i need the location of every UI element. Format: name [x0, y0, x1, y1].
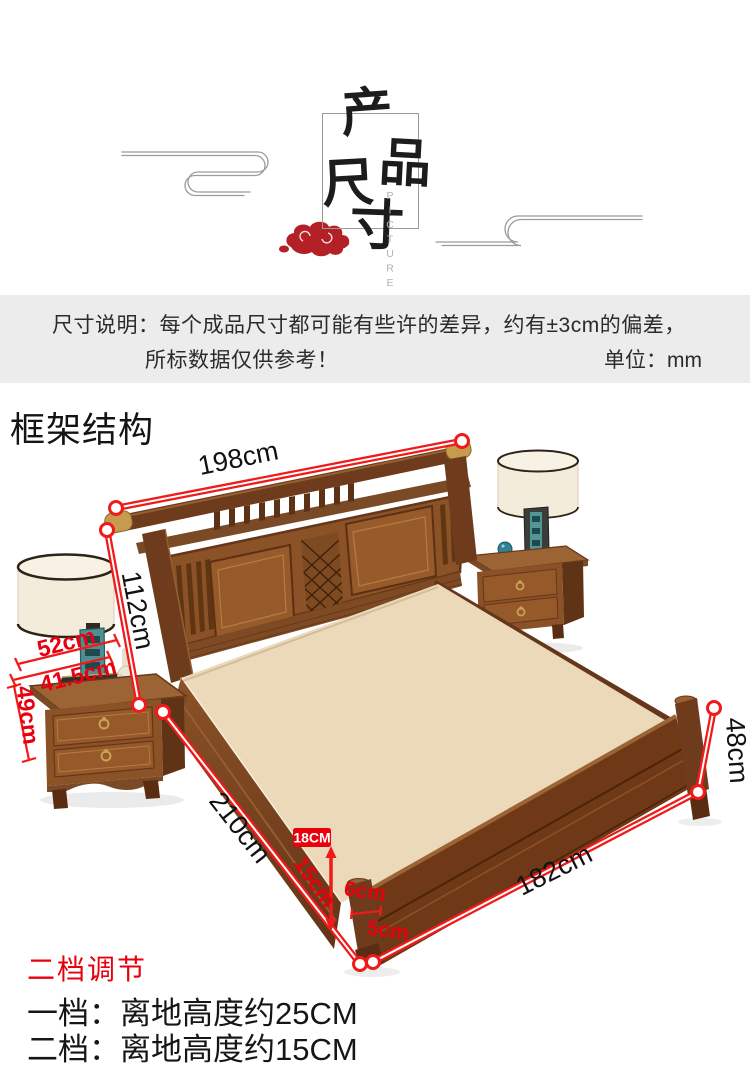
bed	[103, 439, 722, 977]
lamp-shade-top	[498, 451, 578, 472]
adjustment-title: 二档调节	[27, 948, 147, 988]
dim-label-footboard-height: 48cm	[720, 716, 750, 784]
nightstand-leg	[143, 780, 160, 799]
nightstand-side	[562, 561, 584, 625]
lamp-shade-top	[18, 555, 114, 580]
dim-label-headboard-width: 198cm	[196, 435, 281, 481]
bed-illustration: 198cm 112cm 210cm 48cm 182cm 52cm 41.5cm…	[0, 0, 750, 1082]
shadow	[678, 818, 722, 826]
product-size-page: 产 品 尺 寸 PICTURE 尺寸说明：每个成品尺寸都可能有些许的差异，约有±…	[0, 0, 750, 1082]
dim-label-leg-width: 6cm	[342, 877, 387, 906]
adjustment-level-2: 二档：离地高度约15CM	[27, 1024, 358, 1069]
nightstand-leg	[52, 789, 68, 809]
dim-label-clearance-first: 18CM	[293, 830, 330, 846]
lamp-column-marks	[532, 516, 540, 546]
nightstand-leg	[552, 624, 564, 639]
